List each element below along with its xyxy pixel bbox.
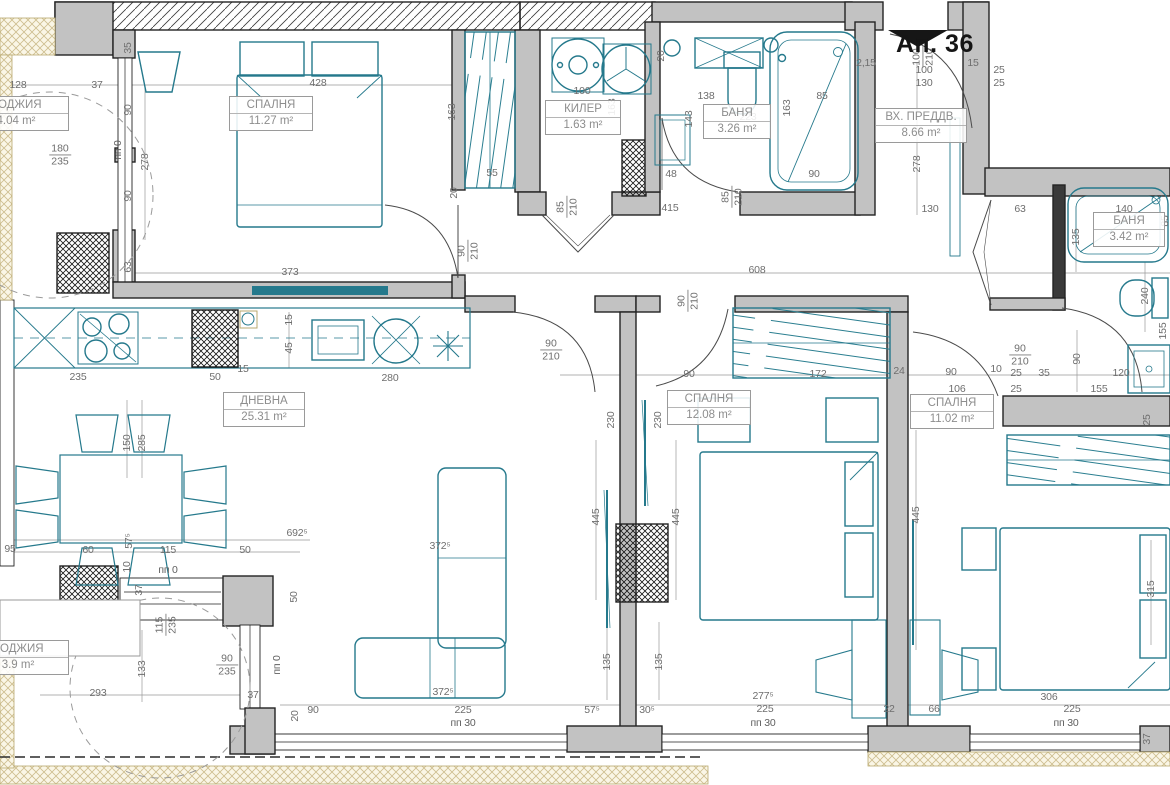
room-area: 3.42 m²: [1094, 230, 1164, 244]
dimension-label: 30⁵: [639, 704, 654, 716]
room-label: СПАЛНЯ12.08 m²: [667, 390, 751, 425]
room-name: ВХ. ПРЕДДВ.: [876, 110, 966, 126]
room-area: 3.9 m²: [0, 658, 68, 672]
door-height: 210: [1009, 355, 1031, 368]
dimension-label: 57⁵: [123, 533, 135, 548]
door-width: 90: [455, 240, 467, 262]
dimension-label: 372⁵: [432, 686, 453, 698]
dimension-label: 235: [70, 371, 87, 383]
dimension-label: 37: [133, 584, 145, 595]
door-width: 85: [719, 186, 731, 208]
door-width: 115: [153, 614, 165, 636]
dimension-label: 128: [10, 79, 27, 91]
dimension-label: 22: [883, 703, 894, 715]
room-area: 12.08 m²: [668, 408, 750, 422]
dimension-label: 428: [310, 77, 327, 89]
dimension-label: 20: [655, 50, 667, 61]
door-size-label: 180235: [49, 142, 71, 167]
dimension-label: 85: [816, 90, 827, 102]
dimension-label: 50: [288, 591, 300, 602]
dimension-label: 163: [781, 100, 793, 117]
dimension-label: 373: [282, 266, 299, 278]
dimension-label: 280: [382, 372, 399, 384]
dimension-label: 278: [139, 154, 151, 171]
room-area: 8.66 m²: [876, 126, 966, 140]
apartment-label: Ап. 36: [896, 30, 1036, 59]
dimension-label: 130: [922, 203, 939, 215]
door-width: 85: [554, 196, 566, 218]
room-area: 4.04 m²: [0, 114, 68, 128]
dimension-label: 90: [683, 368, 694, 380]
dimension-label: 15: [283, 314, 295, 325]
dimension-label: пп 30: [451, 717, 476, 729]
dimension-label: 90: [122, 190, 134, 201]
door-size-label: 90235: [216, 652, 238, 677]
dimension-label: 135: [601, 654, 613, 671]
floor-plan-sheet: 4283731632789090пп 035631283755100163138…: [0, 0, 1170, 785]
door-height: 210: [567, 196, 580, 218]
dimension-label: 163: [446, 104, 458, 121]
room-label: ДНЕВНА25.31 m²: [223, 392, 305, 427]
room-name: СПАЛНЯ: [911, 396, 993, 412]
dimension-label: 57⁵: [584, 704, 599, 716]
dimension-label: 115: [160, 544, 176, 556]
dimension-label: 55: [486, 167, 497, 179]
door-height: 210: [540, 350, 562, 363]
door-width: 180: [49, 142, 71, 154]
room-area: 3.26 m²: [704, 122, 770, 136]
door-width: 90: [675, 290, 687, 312]
dimension-label: 372⁵: [429, 540, 450, 552]
dimension-label: 225: [1064, 703, 1081, 715]
dimension-label: 25: [1010, 383, 1021, 395]
dimension-label: 35: [1038, 367, 1049, 379]
room-label: БАНЯ3.42 m²: [1093, 212, 1165, 247]
room-area: 1.63 m²: [546, 118, 620, 132]
dimension-label: 25: [1010, 367, 1021, 379]
dimension-label: 445: [590, 509, 602, 526]
dimension-label: 90: [1071, 353, 1083, 364]
room-name: ЛОДЖИЯ: [0, 98, 68, 114]
dimension-label: 90: [307, 704, 318, 716]
room-area: 25.31 m²: [224, 410, 304, 424]
dimension-label: 130: [916, 77, 933, 89]
room-label: ЛОДЖИЯ3.9 m²: [0, 640, 69, 675]
door-height: 235: [166, 614, 179, 636]
dimension-label: пп 0: [112, 140, 124, 159]
dimension-label: 608: [749, 264, 766, 276]
dimension-label: 277⁵: [752, 690, 773, 702]
room-name: СПАЛНЯ: [230, 98, 312, 114]
dimension-label: 225: [455, 704, 472, 716]
dimension-label: 230: [605, 412, 617, 429]
dimension-label: 63: [122, 261, 134, 272]
dimension-label: пп 0: [158, 564, 177, 576]
dimension-label: пп 30: [1054, 717, 1079, 729]
dimension-label: 172: [810, 368, 827, 380]
dimension-label: 37: [247, 689, 258, 701]
dimension-label: 25: [993, 64, 1004, 76]
door-width: 90: [216, 652, 238, 664]
door-height: 210: [732, 186, 745, 208]
room-label: СПАЛНЯ11.27 m²: [229, 96, 313, 131]
dimension-label: 155: [1091, 383, 1108, 395]
dimension-label: пп 30: [751, 717, 776, 729]
door-size-label: 90210: [540, 337, 562, 362]
room-label: КИЛЕР1.63 m²: [545, 100, 621, 135]
dimension-label: 285: [136, 435, 148, 452]
dimension-label: 278: [911, 156, 923, 173]
dimension-label: 150: [121, 435, 133, 452]
dimension-label: 225: [757, 703, 774, 715]
dimension-label: 90: [808, 168, 819, 180]
room-name: БАНЯ: [704, 106, 770, 122]
dimension-label: 306: [1041, 691, 1058, 703]
dimension-label: 135: [653, 654, 665, 671]
room-area: 11.27 m²: [230, 114, 312, 128]
room-label: ВХ. ПРЕДДВ.8.66 m²: [875, 108, 967, 143]
dimension-label: 95: [4, 543, 15, 555]
dimension-label: 45: [283, 342, 295, 353]
dimension-label: 50: [239, 544, 250, 556]
dimension-label: 445: [910, 507, 922, 524]
dimension-label: 37: [91, 79, 102, 91]
dimension-label: 90: [945, 366, 956, 378]
dimension-label: 66: [928, 703, 939, 715]
dimension-label: 240: [1139, 288, 1151, 305]
door-width: 90: [540, 337, 562, 349]
dimension-label: 24: [893, 365, 904, 377]
room-label: СПАЛНЯ11.02 m²: [910, 394, 994, 429]
dimension-label: 25: [1141, 414, 1153, 425]
dimension-label: 120: [1113, 367, 1130, 379]
dimension-label: 138: [698, 90, 715, 102]
door-size-label: 85210: [719, 186, 744, 208]
dimension-label: 445: [670, 509, 682, 526]
dimension-label: 90: [122, 104, 134, 115]
room-name: ЛОДЖИЯ: [0, 642, 68, 658]
room-name: БАНЯ: [1094, 214, 1164, 230]
door-size-label: 115235: [153, 614, 178, 636]
room-label: БАНЯ3.26 m²: [703, 104, 771, 139]
room-name: ДНЕВНА: [224, 394, 304, 410]
dimension-label: 35: [122, 42, 134, 53]
dimension-label: 63: [1014, 203, 1025, 215]
dimension-label: 293: [90, 687, 107, 699]
dimension-label: 50: [209, 371, 220, 383]
dimension-label: 415: [662, 202, 679, 214]
door-height: 235: [49, 155, 71, 168]
dimension-label: 37: [1141, 733, 1153, 744]
dimension-label: 135: [1070, 229, 1082, 246]
room-label: ЛОДЖИЯ4.04 m²: [0, 96, 69, 131]
door-height: 210: [688, 290, 701, 312]
room-name: КИЛЕР: [546, 102, 620, 118]
dimension-label: пп 0: [271, 655, 283, 674]
dimension-label: 230: [652, 412, 664, 429]
dimension-label: 133: [136, 661, 148, 678]
dimension-label: 143: [683, 111, 695, 128]
door-size-label: 90210: [675, 290, 700, 312]
dimension-label: 10: [121, 561, 133, 572]
room-area: 11.02 m²: [911, 412, 993, 426]
dimension-label: 20: [448, 187, 460, 198]
dimension-label: 315: [1145, 581, 1157, 598]
dimension-label: 48: [665, 168, 676, 180]
door-height: 210: [468, 240, 481, 262]
door-height: 235: [216, 665, 238, 678]
dimension-label: 100: [574, 85, 591, 97]
room-name: СПАЛНЯ: [668, 392, 750, 408]
dimension-label: 2,15: [856, 57, 876, 69]
door-size-label: 85210: [554, 196, 579, 218]
text-labels-layer: 4283731632789090пп 035631283755100163138…: [0, 0, 1170, 785]
door-size-label: 90210: [1009, 342, 1031, 367]
door-size-label: 90210: [455, 240, 480, 262]
dimension-label: 20: [289, 710, 301, 721]
dimension-label: 155: [1157, 323, 1169, 340]
door-width: 90: [1009, 342, 1031, 354]
dimension-label: 692⁵: [286, 527, 307, 539]
dimension-label: 25: [993, 77, 1004, 89]
dimension-label: 10: [990, 363, 1001, 375]
dimension-label: 15: [237, 363, 248, 375]
dimension-label: 60: [82, 544, 93, 556]
